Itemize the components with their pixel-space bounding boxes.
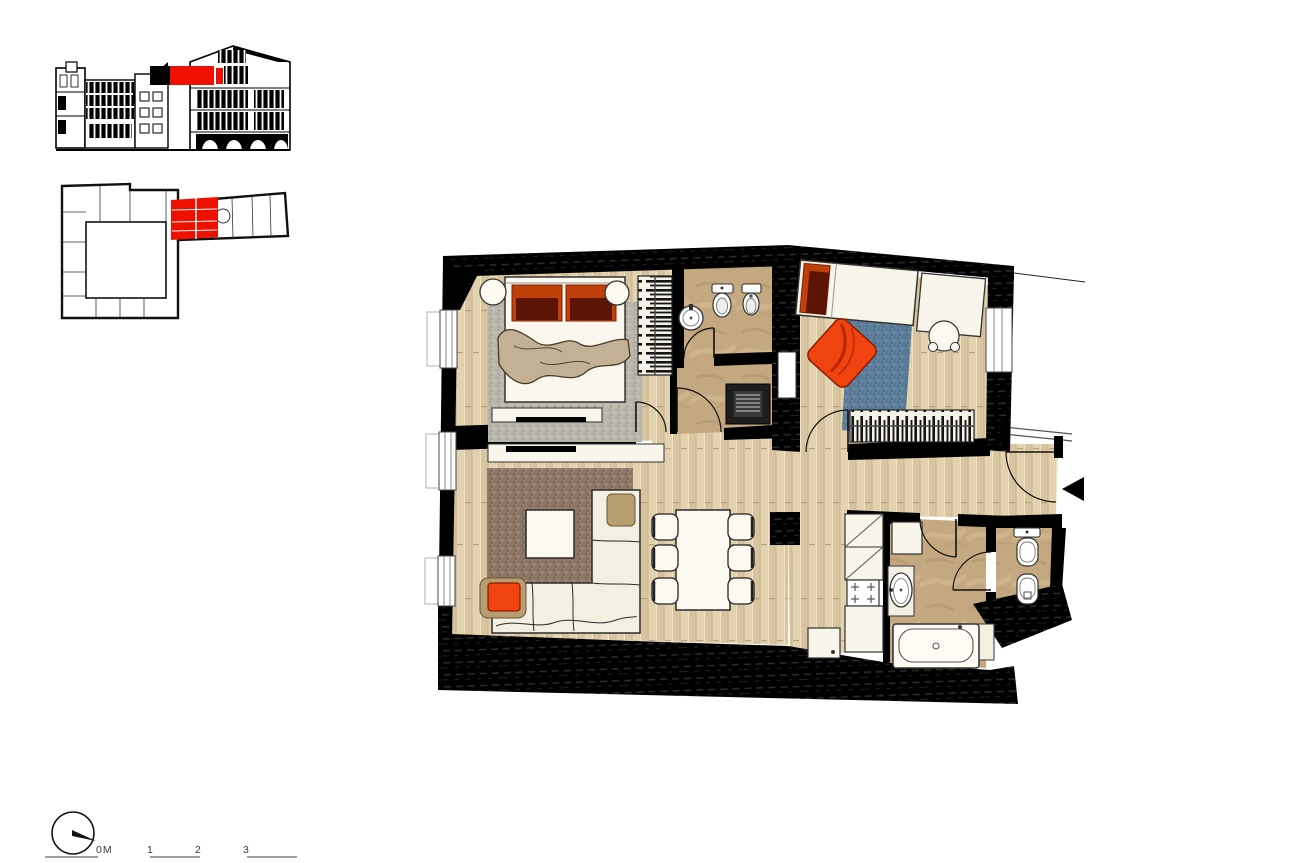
tv-screen [516, 417, 586, 422]
tv-screen [506, 446, 576, 452]
utility-shaft [726, 384, 770, 424]
plan-key-courtyard [86, 222, 166, 298]
window [426, 432, 456, 490]
toilet [1014, 528, 1040, 566]
section-highlighted-unit-part [216, 68, 223, 84]
window [986, 308, 1012, 372]
scale-bar: 0M 1 2 3 [45, 844, 297, 857]
wall-bath-wc2-a [986, 522, 996, 552]
wall-wc1-bottom [714, 352, 772, 366]
corridor-rail [1004, 427, 1072, 434]
scale-label: 1 [147, 844, 154, 856]
desk-chair [929, 321, 960, 352]
section-chimney [66, 62, 77, 72]
dining-chair [728, 514, 754, 540]
dining-table [676, 510, 730, 610]
dining-area [652, 510, 754, 610]
nightstand [480, 279, 506, 305]
dining-chair [652, 578, 678, 604]
building-plan-key [62, 184, 288, 318]
north-indicator-icon [52, 812, 96, 854]
door-jamb [1054, 436, 1063, 458]
bathtub [893, 624, 979, 668]
scale-label: 2 [195, 844, 202, 856]
wall-kitchen-pillar [770, 512, 800, 545]
building-section-key [56, 46, 290, 162]
wall-joint [772, 246, 800, 452]
dining-chair [652, 545, 678, 571]
window [427, 310, 457, 368]
drawing-sheet: 0M 1 2 3 [0, 0, 1299, 863]
main-floor-plan [425, 245, 1085, 704]
floor-plan-svg: 0M 1 2 3 [0, 0, 1299, 863]
entrance-arrow-icon [1062, 477, 1084, 501]
kids-pillow-shadow [806, 271, 830, 315]
scale-label: 0M [96, 844, 113, 856]
wall-wc2-top [996, 514, 1062, 528]
section-highlighted-unit [170, 66, 214, 85]
sofa-cushion-orange [488, 583, 520, 611]
wall-niche [778, 352, 796, 398]
nightstand [605, 281, 629, 305]
kitchen-counter [845, 606, 883, 652]
dining-chair [652, 514, 678, 540]
wall-wc2-right [1050, 528, 1066, 590]
bidet [742, 284, 761, 315]
scale-label: 3 [243, 844, 250, 856]
sofa-cushion-tan [607, 494, 635, 526]
reference-line [1014, 273, 1085, 282]
toilet [712, 284, 733, 317]
bath-niche [978, 624, 994, 660]
washing-machine [892, 522, 922, 554]
plan-key-highlighted-unit [171, 197, 218, 240]
bed-pillow [512, 285, 562, 321]
window [425, 556, 455, 606]
door-jamb [1000, 426, 1010, 442]
cooktop [847, 580, 879, 606]
kitchen-unit [808, 628, 840, 658]
bathroom-sink [888, 566, 914, 616]
dining-chair [728, 578, 754, 604]
dining-chair [728, 545, 754, 571]
bidet [1017, 574, 1038, 604]
coffee-table [526, 510, 574, 558]
